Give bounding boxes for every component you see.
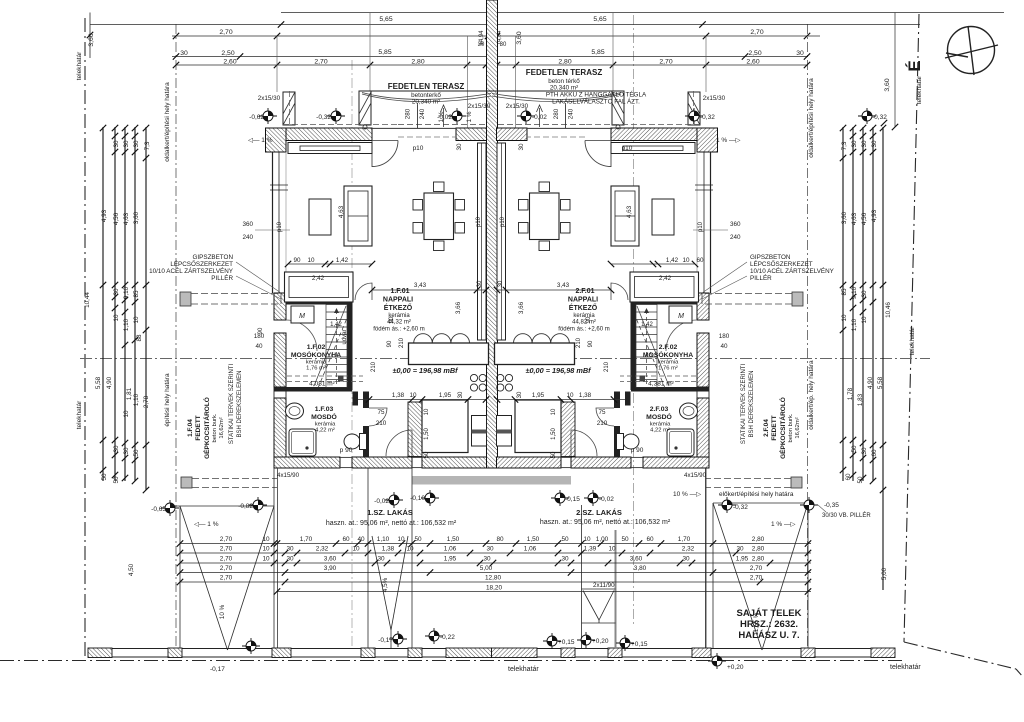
svg-text:50: 50: [551, 451, 557, 458]
svg-text:10: 10: [397, 536, 405, 543]
svg-text:210: 210: [399, 337, 405, 348]
svg-text:-0,02: -0,02: [599, 496, 614, 503]
svg-text:10: 10: [133, 316, 140, 324]
svg-text:40: 40: [720, 343, 728, 350]
svg-text:LÉPCSŐSZERKEZET: LÉPCSŐSZERKEZET: [170, 259, 233, 268]
svg-text:10,46: 10,46: [885, 302, 892, 318]
svg-text:3,60: 3,60: [88, 33, 95, 46]
svg-text:p10: p10: [413, 145, 424, 152]
svg-text:GIPSZBETON: GIPSZBETON: [193, 254, 234, 261]
svg-text:10/10 ACÉL ZÁRTSZELVÉNY: 10/10 ACÉL ZÁRTSZELVÉNY: [149, 266, 234, 275]
svg-text:SAJÁT TELEK: SAJÁT TELEK: [737, 608, 802, 619]
svg-text:1,50: 1,50: [551, 428, 557, 440]
svg-text:10: 10: [123, 410, 130, 418]
svg-text:STATIKAI TERVEK SZERINTI: STATIKAI TERVEK SZERINTI: [229, 364, 235, 445]
svg-text:210: 210: [576, 337, 582, 348]
svg-text:4,22 m²: 4,22 m²: [315, 428, 335, 434]
svg-text:2,80: 2,80: [411, 59, 424, 66]
svg-text:haszn. at.: 95,06 m², nettó at: haszn. at.: 95,06 m², nettó at.: 106,532…: [326, 520, 457, 527]
svg-text:1,78: 1,78: [847, 387, 854, 400]
svg-text:2.F.03: 2.F.03: [650, 406, 669, 413]
svg-text:90: 90: [389, 316, 395, 323]
svg-text:10: 10: [566, 392, 574, 399]
svg-text:30: 30: [736, 546, 744, 553]
svg-text:-0,32: -0,32: [700, 114, 715, 121]
svg-text:1,42: 1,42: [336, 257, 349, 264]
svg-text:3,60: 3,60: [516, 31, 523, 44]
svg-text:90: 90: [387, 340, 393, 347]
svg-text:1,70: 1,70: [300, 536, 313, 543]
svg-text:2,70: 2,70: [750, 565, 763, 572]
svg-text:50: 50: [414, 536, 422, 543]
svg-text:3,43: 3,43: [557, 282, 570, 289]
svg-text:30: 30: [123, 447, 130, 455]
svg-text:10: 10: [262, 556, 270, 563]
svg-text:16,62m²: 16,62m²: [795, 417, 801, 438]
svg-text:előkert/építési hely határa: előkert/építési hely határa: [719, 491, 794, 498]
svg-text:4,63: 4,63: [123, 212, 130, 225]
svg-text:1,10: 1,10: [377, 536, 390, 543]
svg-text:telekhatár: telekhatár: [508, 666, 539, 673]
svg-text:4x15/90: 4x15/90: [277, 472, 300, 479]
svg-text:30: 30: [113, 288, 120, 296]
svg-text:HRSZ.: 2632.: HRSZ.: 2632.: [740, 619, 798, 630]
svg-text:-0,35: -0,35: [824, 502, 839, 509]
svg-text:60: 60: [845, 473, 852, 481]
svg-text:30: 30: [180, 50, 188, 57]
svg-text:4,63: 4,63: [851, 212, 858, 225]
svg-text:30: 30: [113, 445, 120, 453]
svg-text:50: 50: [113, 476, 120, 484]
svg-text:2.F.04: 2.F.04: [763, 419, 770, 437]
svg-text:udvar: udvar: [342, 329, 348, 344]
svg-text:BSH DEREKSZELEMEN: BSH DEREKSZELEMEN: [749, 370, 755, 437]
svg-text:2,70: 2,70: [220, 565, 233, 572]
svg-text:-0,15: -0,15: [565, 496, 580, 503]
svg-text:építési hely határa: építési hely határa: [164, 373, 171, 427]
svg-text:10: 10: [861, 316, 868, 324]
svg-text:2.SZ. LAKÁS: 2.SZ. LAKÁS: [576, 508, 622, 517]
svg-text:MOSÓKONYHA: MOSÓKONYHA: [643, 350, 693, 359]
svg-text:1,95: 1,95: [532, 392, 545, 399]
svg-text:GÉPKOCSITÁROLÓ: GÉPKOCSITÁROLÓ: [202, 397, 211, 459]
svg-text:240: 240: [568, 108, 575, 119]
svg-text:2.F.01: 2.F.01: [575, 288, 594, 295]
svg-text:4,63: 4,63: [338, 205, 345, 218]
svg-text:210: 210: [371, 361, 377, 372]
svg-text:30: 30: [851, 140, 858, 148]
svg-text:20,340 m²: 20,340 m²: [412, 99, 440, 106]
svg-text:10: 10: [583, 536, 591, 543]
svg-text:7,3: 7,3: [841, 141, 848, 150]
svg-text:10: 10: [409, 392, 417, 399]
svg-text:4,93: 4,93: [101, 209, 108, 222]
svg-text:5,00: 5,00: [881, 567, 888, 580]
svg-text:30/30 VB. PILLÉR: 30/30 VB. PILLÉR: [822, 512, 871, 519]
svg-text:p10: p10: [622, 145, 633, 152]
svg-text:STATIKAI TERVEK SZERINTI: STATIKAI TERVEK SZERINTI: [741, 364, 747, 445]
svg-text:3,60: 3,60: [841, 211, 848, 224]
svg-text:10: 10: [113, 314, 120, 322]
svg-text:1,42: 1,42: [641, 322, 653, 328]
svg-text:1,70: 1,70: [678, 536, 691, 543]
svg-text:3,60: 3,60: [324, 556, 337, 563]
svg-text:180: 180: [254, 333, 265, 340]
svg-text:88: 88: [136, 334, 143, 342]
svg-text:2,70: 2,70: [220, 556, 233, 563]
svg-text:30: 30: [133, 140, 140, 148]
svg-text:2,70: 2,70: [750, 29, 763, 36]
svg-text:oldalkert/építési hely határa: oldalkert/építési hely határa: [164, 82, 171, 162]
svg-text:1.SZ. LAKÁS: 1.SZ. LAKÁS: [367, 508, 413, 517]
svg-text:30: 30: [861, 140, 868, 148]
svg-text:4,5%: 4,5%: [382, 577, 389, 592]
svg-text:75: 75: [377, 409, 385, 416]
svg-text:2,70: 2,70: [750, 575, 763, 582]
svg-text:p10: p10: [698, 221, 704, 232]
svg-text:GIPSZBETON: GIPSZBETON: [750, 254, 791, 261]
svg-text:1,50: 1,50: [424, 428, 430, 440]
svg-text:2,60: 2,60: [746, 59, 759, 66]
svg-text:5,58: 5,58: [95, 376, 102, 389]
svg-text:10 %: 10 %: [219, 604, 226, 619]
svg-text:30: 30: [871, 140, 878, 148]
svg-text:10: 10: [841, 314, 848, 322]
svg-text:20.340 m²: 20.340 m²: [550, 85, 578, 92]
svg-text:-0,02: -0,02: [374, 498, 389, 505]
svg-text:NAPPALI: NAPPALI: [383, 297, 413, 304]
svg-text:50: 50: [424, 451, 430, 458]
svg-text:±0,00 = 196,98 mBf: ±0,00 = 196,98 mBf: [392, 366, 459, 375]
svg-text:2,78: 2,78: [143, 395, 150, 408]
svg-text:50: 50: [101, 473, 108, 481]
svg-text:1,06: 1,06: [524, 546, 537, 553]
svg-text:FEDETLEN TERASZ: FEDETLEN TERASZ: [526, 68, 603, 77]
svg-text:10: 10: [352, 546, 360, 553]
svg-text:30: 30: [517, 391, 523, 398]
svg-text:-0,10: -0,10: [410, 495, 425, 502]
svg-text:-0,17: -0,17: [210, 666, 225, 673]
svg-text:telekhatár: telekhatár: [76, 51, 83, 80]
svg-text:30: 30: [561, 556, 569, 563]
svg-text:30: 30: [286, 546, 294, 553]
svg-text:10: 10: [424, 408, 430, 415]
svg-text:44,82 m²: 44,82 m²: [572, 320, 596, 326]
svg-text:2x15/30: 2x15/30: [506, 103, 529, 110]
svg-text:ÉTKEZŐ: ÉTKEZŐ: [569, 303, 598, 312]
svg-text:5,85: 5,85: [378, 49, 391, 56]
svg-text:haszn. at.: 95,06 m², nettó at: haszn. at.: 95,06 m², nettó at.: 106,532…: [540, 519, 671, 526]
svg-text:280: 280: [553, 108, 560, 119]
svg-text:10: 10: [307, 257, 315, 264]
svg-text:10: 10: [406, 546, 414, 553]
svg-text:telekhatár: telekhatár: [76, 400, 83, 429]
svg-text:1.F.04: 1.F.04: [187, 419, 194, 437]
svg-text:-0,32: -0,32: [316, 114, 331, 121]
svg-text:12,80: 12,80: [485, 575, 501, 582]
svg-text:30: 30: [123, 140, 130, 148]
svg-text:30: 30: [861, 290, 868, 298]
svg-text:60: 60: [696, 257, 704, 264]
svg-text:1 % —▷: 1 % —▷: [771, 521, 797, 528]
svg-text:2x15/30: 2x15/30: [258, 95, 281, 102]
svg-text:2,50: 2,50: [221, 50, 234, 57]
svg-text:telekhatár: telekhatár: [890, 664, 921, 671]
svg-text:1,38: 1,38: [392, 392, 405, 399]
svg-text:4,50: 4,50: [128, 563, 135, 576]
svg-text:280: 280: [405, 108, 412, 119]
svg-text:5,58: 5,58: [877, 376, 884, 389]
svg-text:telekhatár: telekhatár: [916, 75, 923, 104]
svg-text:2,80: 2,80: [752, 546, 765, 553]
svg-text:+0,15: +0,15: [631, 641, 648, 648]
svg-text:2,80: 2,80: [752, 556, 765, 563]
svg-text:2x15/30: 2x15/30: [468, 103, 491, 110]
svg-text:16,62m²: 16,62m²: [219, 417, 225, 438]
svg-text:LÉPCSŐSZERKEZET: LÉPCSŐSZERKEZET: [750, 259, 813, 268]
svg-text:240: 240: [242, 234, 253, 241]
svg-text:30: 30: [456, 143, 463, 151]
svg-text:50: 50: [133, 449, 140, 457]
svg-text:210: 210: [376, 420, 387, 427]
svg-text:-0,02: -0,02: [437, 114, 452, 121]
svg-text:4,90: 4,90: [106, 376, 113, 389]
svg-text:-0,22: -0,22: [440, 634, 455, 641]
svg-text:1,95: 1,95: [736, 556, 749, 563]
svg-text:1,50: 1,50: [447, 536, 460, 543]
svg-text:PILLÉR: PILLÉR: [211, 273, 233, 282]
svg-text:LAKÁSELVÁLASZTÓ FAL ÁZT.: LAKÁSELVÁLASZTÓ FAL ÁZT.: [552, 97, 640, 106]
svg-text:7,3: 7,3: [144, 141, 151, 150]
svg-text:2,42: 2,42: [312, 275, 325, 282]
svg-text:75: 75: [598, 409, 606, 416]
svg-text:-0,82: -0,82: [238, 503, 253, 510]
svg-text:NAPPALI: NAPPALI: [568, 297, 598, 304]
svg-text:2,50: 2,50: [748, 50, 761, 57]
svg-text:p 90: p 90: [340, 447, 353, 454]
svg-text:2x11/90: 2x11/90: [593, 582, 615, 589]
svg-text:180: 180: [719, 333, 730, 340]
svg-text:FEDETLEN TERASZ: FEDETLEN TERASZ: [388, 82, 465, 91]
svg-text:5,00: 5,00: [480, 565, 493, 572]
svg-text:oldalkert/építési hely határa: oldalkert/építési hely határa: [808, 78, 815, 158]
svg-text:2,32: 2,32: [682, 546, 695, 553]
svg-text:4,56: 4,56: [113, 212, 120, 225]
svg-text:ÉTKEZŐ: ÉTKEZŐ: [384, 303, 413, 312]
svg-text:3,43: 3,43: [414, 282, 427, 289]
svg-text:5,85: 5,85: [591, 49, 604, 56]
svg-text:-0,17: -0,17: [378, 637, 393, 644]
svg-text:1,00: 1,00: [596, 536, 609, 543]
svg-text:60: 60: [646, 536, 654, 543]
svg-text:+0,20: +0,20: [592, 638, 609, 645]
svg-text:oldalkert/ép. hely határa: oldalkert/ép. hely határa: [808, 360, 815, 430]
svg-text:2,32: 2,32: [316, 546, 329, 553]
svg-text:3,60: 3,60: [630, 556, 643, 563]
svg-text:4x15/90: 4x15/90: [684, 472, 707, 479]
svg-text:85: 85: [133, 290, 140, 298]
svg-text:+0,15: +0,15: [558, 639, 575, 646]
svg-text:30: 30: [861, 447, 868, 455]
svg-text:3,90: 3,90: [324, 565, 337, 572]
svg-text:p10: p10: [277, 221, 283, 232]
svg-text:4,22 m²: 4,22 m²: [650, 428, 670, 434]
svg-text:födém ás.: +2,60 m: födém ás.: +2,60 m: [558, 327, 610, 333]
svg-text:MOSDÓ: MOSDÓ: [646, 412, 672, 421]
svg-text:1,76 m²: 1,76 m²: [658, 366, 678, 372]
svg-text:80: 80: [496, 536, 504, 543]
svg-text:40: 40: [255, 343, 263, 350]
svg-text:◁— 1 %: ◁— 1 %: [248, 137, 273, 144]
svg-text:3,66: 3,66: [455, 301, 462, 314]
svg-text:beton burk.: beton burk.: [212, 413, 218, 442]
svg-text:30: 30: [377, 556, 385, 563]
svg-text:90: 90: [586, 316, 592, 323]
svg-text:2,70: 2,70: [314, 59, 327, 66]
svg-text:2,70: 2,70: [219, 29, 232, 36]
svg-text:3,60: 3,60: [884, 78, 891, 91]
svg-text:4,081 m²: 4,081 m²: [309, 381, 335, 388]
svg-text:2,60: 2,60: [223, 59, 236, 66]
svg-text:födém ás.: +2,60 m: födém ás.: +2,60 m: [373, 327, 425, 333]
svg-text:3,66: 3,66: [518, 301, 525, 314]
svg-text:90: 90: [588, 340, 594, 347]
svg-text:±0,00 = 196,98 mBf: ±0,00 = 196,98 mBf: [525, 366, 592, 375]
svg-text:1.F.01: 1.F.01: [390, 288, 409, 295]
svg-text:4,63: 4,63: [626, 205, 633, 218]
svg-text:2,42: 2,42: [659, 275, 672, 282]
svg-text:FEDETT: FEDETT: [771, 415, 778, 440]
svg-text:10: 10: [262, 536, 270, 543]
svg-text:1,95: 1,95: [439, 392, 452, 399]
svg-text:4,56: 4,56: [861, 212, 868, 225]
svg-text:beton burk.: beton burk.: [788, 413, 794, 442]
svg-text:É: É: [905, 60, 924, 71]
svg-text:5,65: 5,65: [593, 16, 606, 23]
svg-text:1,06: 1,06: [444, 546, 457, 553]
svg-text:1,10: 1,10: [851, 318, 858, 331]
svg-text:3,80: 3,80: [634, 565, 647, 572]
svg-text:1,10: 1,10: [133, 393, 140, 406]
svg-text:10 % —▷: 10 % —▷: [673, 491, 702, 498]
svg-text:1,50: 1,50: [527, 536, 540, 543]
svg-text:MOSÓKONYHA: MOSÓKONYHA: [291, 350, 341, 359]
svg-text:9,10: 9,10: [123, 286, 130, 299]
svg-text:1,42: 1,42: [330, 322, 342, 328]
svg-text:30: 30: [796, 50, 804, 57]
svg-text:M: M: [299, 313, 305, 320]
svg-text:1,81: 1,81: [126, 387, 133, 400]
svg-text:2,70: 2,70: [220, 575, 233, 582]
svg-text:50: 50: [561, 536, 569, 543]
svg-text:p10: p10: [500, 216, 506, 227]
svg-text:90: 90: [293, 257, 301, 264]
svg-text:+0,20: +0,20: [727, 664, 744, 671]
svg-text:85: 85: [841, 288, 848, 296]
svg-text:240: 240: [419, 108, 426, 119]
svg-text:kerámia: kerámia: [573, 313, 595, 319]
svg-text:1 %: 1 %: [466, 111, 473, 122]
svg-text:360: 360: [242, 221, 253, 228]
svg-text:-0,65: -0,65: [151, 506, 166, 513]
svg-text:30: 30: [483, 556, 491, 563]
svg-text:1,83: 1,83: [857, 393, 864, 406]
svg-text:4,90: 4,90: [867, 376, 874, 389]
svg-text:11,55 %: 11,55 %: [753, 612, 760, 635]
svg-text:360: 360: [730, 221, 741, 228]
svg-text:3,60: 3,60: [133, 211, 140, 224]
svg-text:30: 30: [486, 546, 494, 553]
svg-text:9,10: 9,10: [851, 286, 858, 299]
svg-text:M: M: [678, 313, 684, 320]
svg-text:14,94: 14,94: [479, 30, 485, 46]
svg-text:240: 240: [730, 234, 741, 241]
svg-text:10: 10: [551, 408, 557, 415]
svg-text:◁— 1 %: ◁— 1 %: [194, 521, 219, 528]
svg-text:1,10: 1,10: [123, 318, 130, 331]
svg-text:30: 30: [682, 556, 690, 563]
svg-text:10: 10: [262, 546, 270, 553]
svg-text:4,381 m²: 4,381 m²: [648, 381, 674, 388]
svg-text:18,20: 18,20: [486, 585, 502, 592]
svg-text:2,80: 2,80: [558, 59, 571, 66]
svg-text:1.F.02: 1.F.02: [307, 344, 326, 351]
svg-text:MOSDÓ: MOSDÓ: [311, 412, 337, 421]
svg-text:-0,32: -0,32: [872, 114, 887, 121]
svg-text:60: 60: [342, 536, 350, 543]
svg-text:2,80: 2,80: [752, 536, 765, 543]
svg-text:50: 50: [621, 536, 629, 543]
svg-text:GÉPKOCSITÁROLÓ: GÉPKOCSITÁROLÓ: [778, 397, 787, 459]
svg-text:2,70: 2,70: [659, 59, 672, 66]
svg-text:2.F.02: 2.F.02: [659, 344, 678, 351]
svg-text:1 % —▷: 1 % —▷: [716, 137, 742, 144]
svg-text:50: 50: [851, 445, 858, 453]
svg-text:-0,62: -0,62: [249, 114, 264, 121]
svg-text:60: 60: [871, 449, 878, 457]
svg-text:2x15/30: 2x15/30: [703, 95, 726, 102]
svg-text:HALÁSZ U. 7.: HALÁSZ U. 7.: [738, 630, 799, 641]
svg-text:1,42: 1,42: [666, 257, 679, 264]
svg-text:30: 30: [286, 556, 294, 563]
svg-text:10/10 ACÉL ZÁRTSZELVÉNY: 10/10 ACÉL ZÁRTSZELVÉNY: [750, 266, 835, 275]
svg-text:1,95: 1,95: [444, 556, 457, 563]
svg-text:1,38: 1,38: [579, 392, 592, 399]
svg-text:4,93: 4,93: [871, 209, 878, 222]
svg-text:1,38: 1,38: [382, 546, 395, 553]
svg-text:10: 10: [682, 257, 690, 264]
svg-text:1.F.03: 1.F.03: [315, 406, 334, 413]
svg-text:30: 30: [518, 143, 525, 151]
svg-text:BSH DEREKSZELEMEN: BSH DEREKSZELEMEN: [237, 370, 243, 437]
svg-text:30: 30: [498, 280, 504, 287]
svg-text:FEDETT: FEDETT: [195, 415, 202, 440]
svg-text:210: 210: [604, 361, 610, 372]
svg-text:telekhatár: telekhatár: [909, 326, 916, 355]
svg-text:50: 50: [857, 476, 864, 484]
svg-text:1,39: 1,39: [584, 546, 597, 553]
svg-text:30: 30: [477, 280, 483, 287]
svg-text:10: 10: [608, 546, 616, 553]
svg-text:40: 40: [357, 536, 365, 543]
svg-text:PILLÉR: PILLÉR: [750, 273, 772, 282]
svg-text:30: 30: [458, 391, 464, 398]
svg-text:1,76 m²: 1,76 m²: [306, 366, 326, 372]
svg-text:210: 210: [597, 420, 608, 427]
svg-text:10,44: 10,44: [84, 292, 91, 308]
svg-text:2,70: 2,70: [220, 546, 233, 553]
svg-text:-0,02: -0,02: [532, 114, 547, 121]
